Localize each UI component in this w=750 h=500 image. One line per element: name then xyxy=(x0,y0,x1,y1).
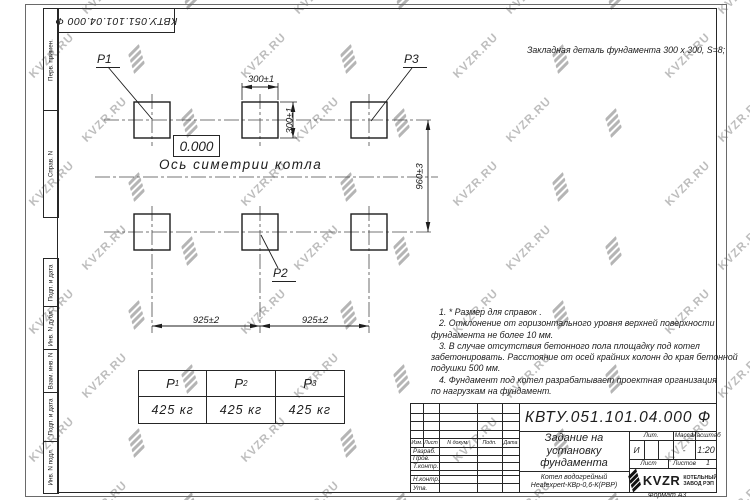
tb-header-podp: Подп. xyxy=(477,438,502,447)
tb-lit-value: И xyxy=(629,440,644,459)
load-table-value: 425 кг xyxy=(139,397,207,423)
load-table: Р1 Р2 Р3 425 кг 425 кг 425 кг xyxy=(138,370,345,424)
tb-sheets-value: 1 xyxy=(701,459,715,468)
tb-mass-value: - xyxy=(673,440,695,459)
dim-span-left: 925±2 xyxy=(184,315,228,326)
note-line: 4. Фундамент под котел разрабатывает про… xyxy=(431,375,733,386)
tb-title: Задание на установку фундамента xyxy=(519,431,629,471)
tb-sheet-label: Лист xyxy=(629,459,668,468)
tb-doc-number: КВТУ.051.101.04.000 Ф xyxy=(519,404,717,431)
load-table-value: 425 кг xyxy=(276,397,344,423)
tb-header-izm: Изм. xyxy=(411,438,423,447)
dim-side-height: 300±1 xyxy=(272,102,308,138)
tb-header-list: Лист xyxy=(423,438,439,447)
dim-span-right: 925±2 xyxy=(293,315,337,326)
title-block: Изм. Лист N докум. Подп. Дата Разраб. Пр… xyxy=(410,403,717,493)
dim-top-width: 300±1 xyxy=(239,74,283,85)
kvzr-logo: KVZR КОТЕЛЬНЫЙ ЗАВОД РЭП xyxy=(629,468,717,493)
boiler-symmetry-axis-label: Ось симетрии котла xyxy=(159,157,322,172)
tb-row-utv: Утв. xyxy=(411,483,441,493)
load-table-header: Р1 xyxy=(139,371,207,397)
note-line: 2. Отклонение от горизонтального уровня … xyxy=(431,318,733,329)
load-table-value: 425 кг xyxy=(207,397,275,423)
pad-label-p1: Р1 xyxy=(96,52,120,68)
tb-scale-value: 1:20 xyxy=(695,440,717,459)
pad-label-p3: Р3 xyxy=(403,52,427,68)
tb-lit-label: Лит. xyxy=(629,431,673,440)
note-line: 1. * Размер для справок . xyxy=(431,307,733,318)
tb-header-data: Дата xyxy=(502,438,519,447)
engineering-drawing-sheet: { "sheet": { "corner_doc_number": "КВТУ.… xyxy=(0,0,750,500)
note-line: 3. В случае отсутствия бетонного пола пл… xyxy=(431,341,733,352)
kvzr-logo-text: KVZR xyxy=(643,473,680,488)
tb-row-razrab: Разраб. xyxy=(411,447,441,455)
tb-row-tkontr: Т.контр. xyxy=(411,462,441,470)
note-line: подушки 500 мм. xyxy=(431,363,733,374)
load-table-header: Р2 xyxy=(207,371,275,397)
embedded-detail-note: Закладная деталь фундамента 300 х 300, S… xyxy=(527,45,725,55)
pad-label-p2: Р2 xyxy=(272,266,296,282)
load-table-header: Р3 xyxy=(276,371,344,397)
tb-sheets-label: Листов xyxy=(668,459,701,468)
kvzr-logo-subtext: КОТЕЛЬНЫЙ ЗАВОД РЭП xyxy=(683,475,717,487)
note-line: забетонировать. Расстояние от осей крайн… xyxy=(431,352,733,363)
note-line: по нагрузкам на фундамент. xyxy=(431,386,733,397)
level-mark: 0.000 xyxy=(173,135,220,157)
tb-row-prov: Пров. xyxy=(411,455,441,462)
tb-scale-label: Масштаб xyxy=(695,431,717,440)
tb-header-ndocum: N докум. xyxy=(439,438,477,447)
format-label: Формат А3 xyxy=(648,492,686,499)
dim-row-spacing: 960±3 xyxy=(402,158,438,194)
tb-product: Котел водогрейный Heatexpert-КВр-0,6-К(Р… xyxy=(519,471,629,493)
note-line: фундамента не более 10 мм. xyxy=(431,330,733,341)
technical-notes: 1. * Размер для справок . 2. Отклонение … xyxy=(431,307,733,397)
foundation-pads xyxy=(134,102,387,250)
kvzr-stripes-icon xyxy=(628,469,641,492)
tb-row-nkontr: Н.контр. xyxy=(411,475,441,483)
